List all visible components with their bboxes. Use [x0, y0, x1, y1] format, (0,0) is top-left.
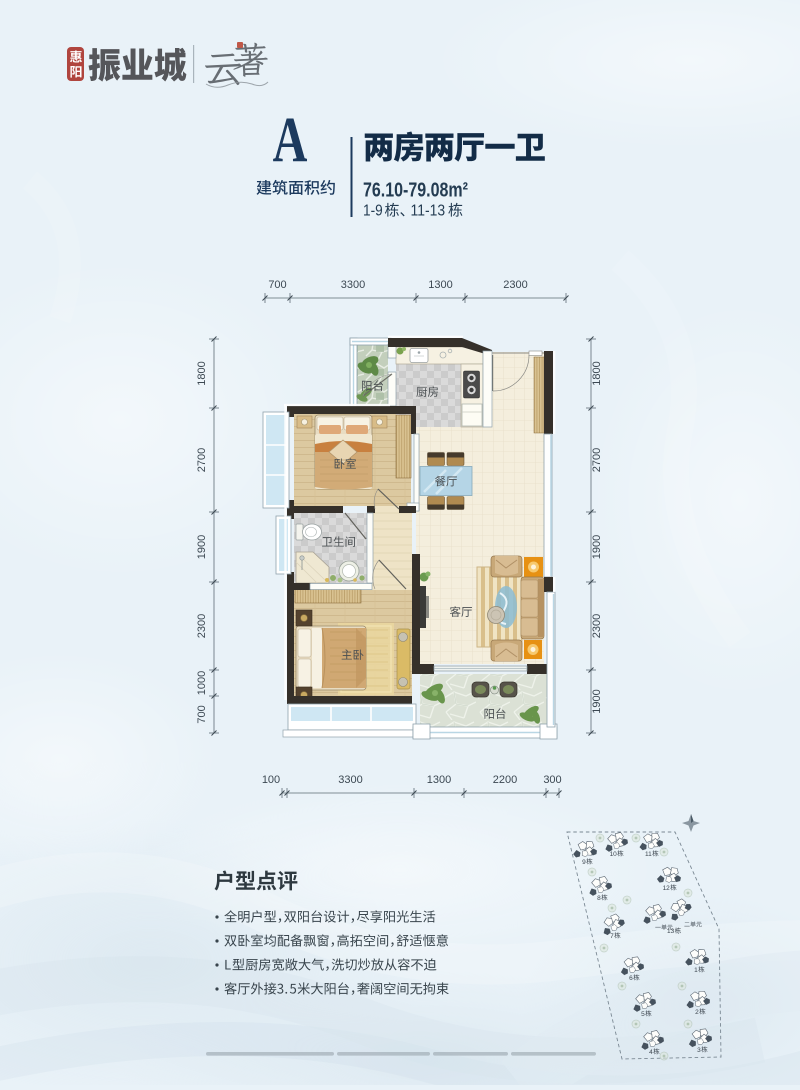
svg-text:700: 700 — [196, 705, 208, 723]
svg-text:300: 300 — [543, 774, 561, 786]
svg-text:76.10-79.08m²: 76.10-79.08m² — [363, 179, 468, 201]
svg-text:3: 3 — [697, 1047, 701, 1054]
svg-text:1900: 1900 — [591, 535, 603, 559]
svg-text:1800: 1800 — [196, 361, 208, 385]
svg-text:700: 700 — [268, 279, 286, 291]
svg-text:1900: 1900 — [591, 689, 603, 713]
svg-text:1800: 1800 — [591, 361, 603, 385]
svg-text:1-9: 1-9 — [363, 203, 383, 220]
svg-text:7: 7 — [610, 933, 614, 940]
svg-text:2: 2 — [695, 1009, 699, 1016]
svg-text:A: A — [273, 104, 308, 176]
svg-text:12: 12 — [663, 885, 671, 892]
svg-text:3300: 3300 — [341, 279, 365, 291]
svg-text:100: 100 — [262, 774, 280, 786]
svg-text:4: 4 — [649, 1049, 653, 1056]
svg-text:2700: 2700 — [196, 448, 208, 472]
svg-text:1000: 1000 — [196, 671, 208, 695]
svg-text:1300: 1300 — [427, 774, 451, 786]
svg-text:2300: 2300 — [196, 614, 208, 638]
svg-text:6: 6 — [629, 975, 633, 982]
svg-text:10: 10 — [610, 851, 618, 858]
svg-text:2200: 2200 — [493, 774, 517, 786]
svg-text:2700: 2700 — [591, 448, 603, 472]
svg-text:1300: 1300 — [428, 279, 452, 291]
svg-text:5: 5 — [641, 1011, 645, 1018]
svg-text:11: 11 — [645, 851, 652, 858]
svg-text:8: 8 — [597, 895, 601, 902]
svg-text:1: 1 — [694, 967, 698, 974]
svg-text:9: 9 — [582, 859, 586, 866]
svg-text:2300: 2300 — [503, 279, 527, 291]
svg-text:3300: 3300 — [338, 774, 362, 786]
svg-text:1900: 1900 — [196, 535, 208, 559]
svg-text:11-13: 11-13 — [411, 203, 446, 220]
svg-text:2300: 2300 — [591, 614, 603, 638]
